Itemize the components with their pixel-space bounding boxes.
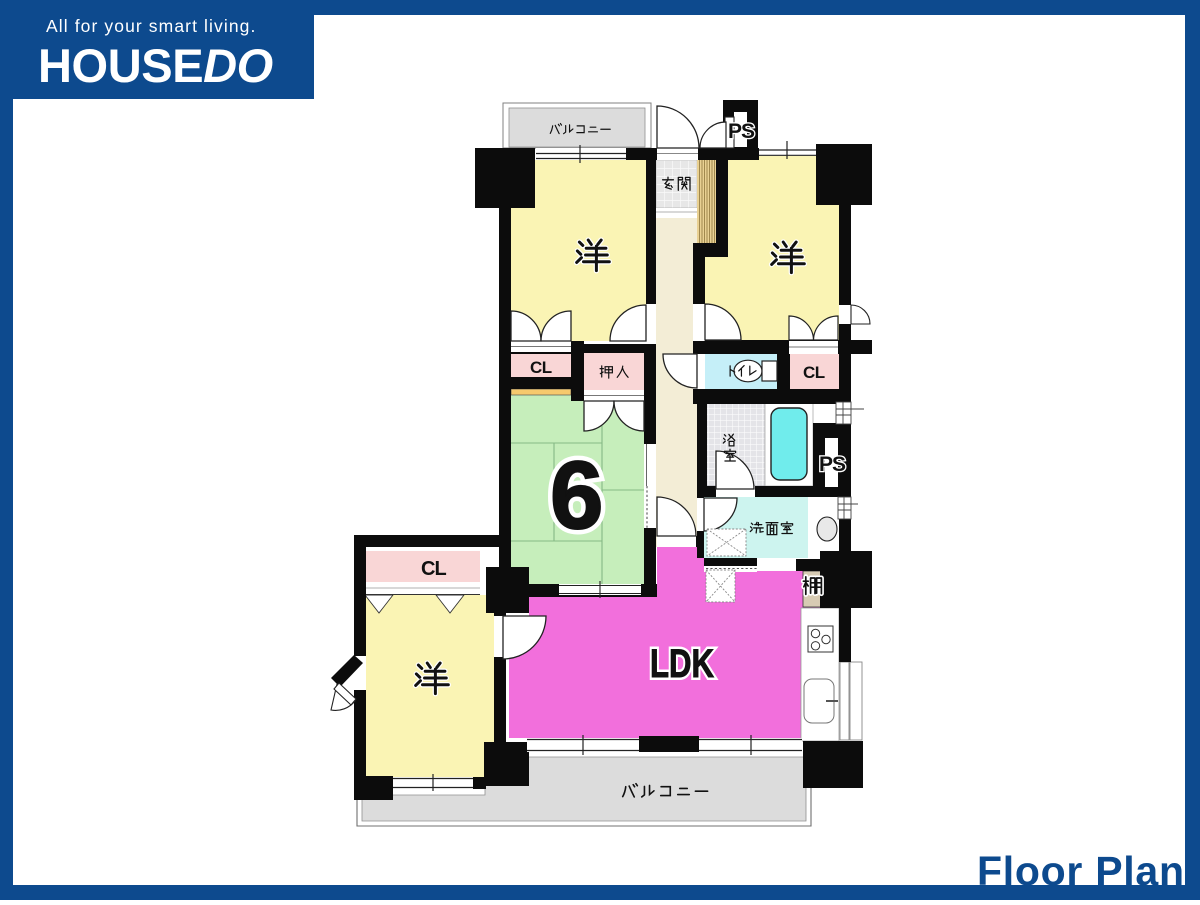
svg-text:PS: PS <box>728 120 755 143</box>
svg-text:LDK: LDK <box>650 642 714 686</box>
svg-text:CL: CL <box>530 358 552 377</box>
svg-text:PS: PS <box>819 453 846 476</box>
svg-text:6: 6 <box>550 442 603 549</box>
svg-text:HOUSEDO: HOUSEDO <box>38 39 273 92</box>
svg-text:CL: CL <box>803 363 825 382</box>
svg-text:All for your smart living.: All for your smart living. <box>46 16 256 36</box>
svg-text:Floor Plan: Floor Plan <box>977 848 1184 894</box>
svg-text:CL: CL <box>421 558 446 580</box>
